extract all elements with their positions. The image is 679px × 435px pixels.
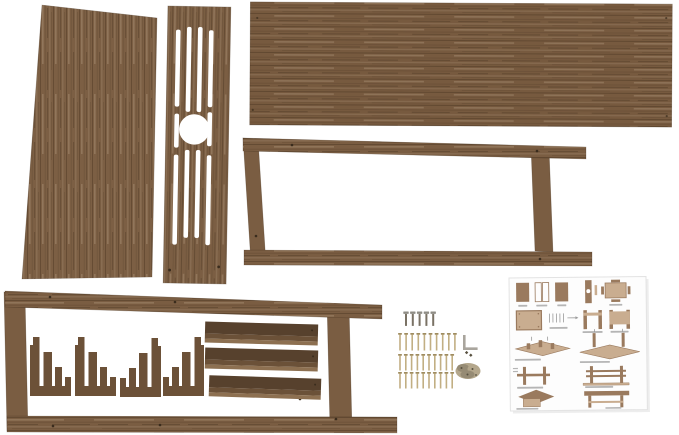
medium-screws [445, 354, 449, 356]
support-slat-3 [209, 375, 322, 400]
long-screws [416, 333, 420, 335]
medium-screws [421, 354, 425, 356]
grille-panel [163, 6, 231, 284]
long-frame [243, 138, 592, 266]
short-screws [421, 372, 425, 374]
long-screws [410, 333, 414, 335]
short-screws [450, 372, 454, 374]
bolt [410, 312, 415, 314]
short-screws [433, 372, 437, 374]
medium-screws [439, 354, 443, 356]
corner-bracket-2 [75, 337, 116, 396]
support-slat-1 [205, 322, 319, 346]
short-screws [404, 372, 408, 374]
long-screws [453, 333, 457, 335]
long-screws [429, 333, 433, 335]
long-screws [435, 333, 439, 335]
tabletop-panel [250, 2, 673, 127]
support-slat-2 [205, 348, 319, 372]
bolt [424, 312, 429, 314]
bolt [417, 312, 422, 314]
hardware-set [398, 312, 457, 389]
hardware-cluster [456, 363, 481, 379]
medium-screws [404, 354, 408, 356]
bolt [431, 312, 436, 314]
medium-screws [433, 354, 437, 356]
short-screws [427, 372, 431, 374]
long-screws [441, 333, 445, 335]
medium-screws [410, 354, 414, 356]
bolt [403, 312, 408, 314]
side-panel [22, 5, 157, 279]
long-screws [423, 333, 427, 335]
scene-svg [0, 0, 679, 435]
short-screws [445, 372, 449, 374]
small-fasteners [465, 351, 473, 357]
short-screws [398, 372, 402, 374]
corner-bracket-4 [163, 337, 204, 396]
medium-screws [450, 354, 454, 356]
long-screws [404, 333, 408, 335]
medium-screws [416, 354, 420, 356]
allen-key [463, 335, 478, 350]
product-photo [0, 0, 679, 435]
medium-screws [427, 354, 431, 356]
short-screws [410, 372, 414, 374]
short-screws [416, 372, 420, 374]
medium-screws [398, 354, 402, 356]
corner-bracket-3 [120, 338, 161, 397]
corner-bracket-1 [30, 337, 71, 396]
long-screws [398, 333, 402, 335]
short-screws [439, 372, 443, 374]
long-screws [447, 333, 451, 335]
instruction-manual [509, 277, 650, 414]
